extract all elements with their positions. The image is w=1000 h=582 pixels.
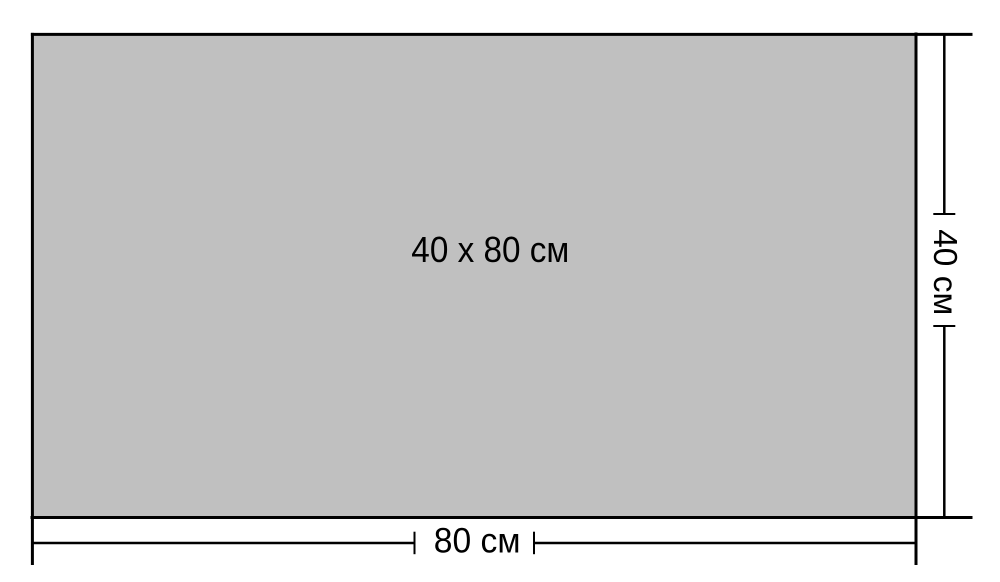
svg-text:40 см: 40 см [927, 229, 964, 315]
svg-text:40 x 80 см: 40 x 80 см [411, 229, 569, 270]
svg-text:80 см: 80 см [434, 521, 521, 560]
